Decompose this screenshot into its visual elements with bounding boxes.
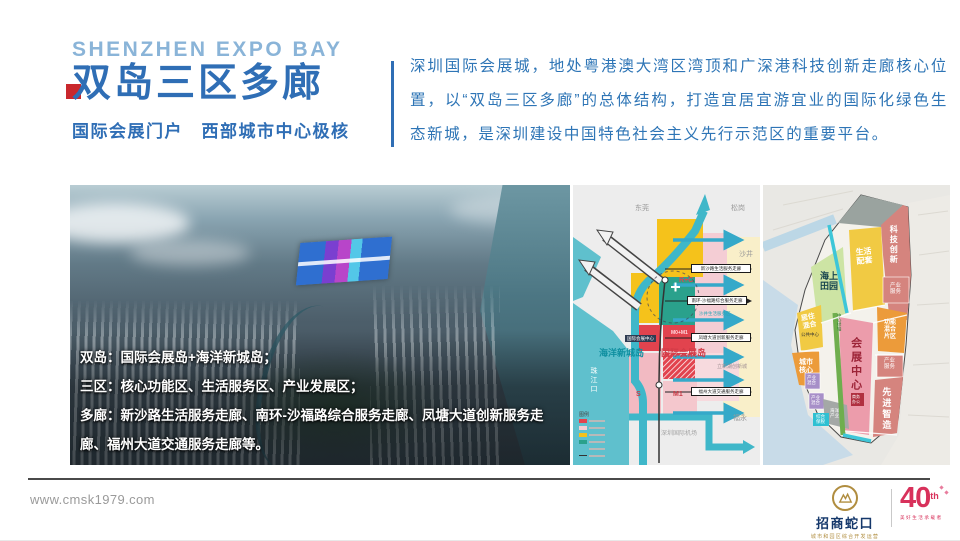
website-url: www.cmsk1979.com [30, 492, 155, 507]
region-label-shajing: 沙井 [739, 251, 753, 259]
zone-label-expo-center: 会展中心 [849, 337, 862, 393]
caption-line-islands: 双岛：国际会展岛+海洋新城岛； [80, 343, 560, 372]
zone-label-industry-service-2: 产业服务 [884, 358, 896, 371]
region-label-dongguan: 东莞 [635, 205, 649, 213]
caption-text: 国际会展岛+海洋新城岛； [121, 350, 277, 365]
zone-label-sea-garden: 海上田园 [820, 271, 840, 292]
zone-label-industry-mixed-1: 产业混合 [807, 375, 818, 385]
content-row: 双岛：国际会展岛+海洋新城岛； 三区：核心功能区、生活服务区、产业发展区； 多廊… [70, 185, 950, 465]
legend-row [579, 418, 605, 425]
zone-label-public-center: 公共中心 [801, 332, 819, 337]
sparkle-icon [944, 490, 948, 494]
island-label-ocean-new-city: 海洋新城岛 [599, 348, 644, 358]
zone-label-living: 生活配套 [855, 246, 877, 266]
zone-code-m0m1: M0+M1 [671, 331, 688, 337]
caption-text: 核心功能区、生活服务区、产业发展区； [121, 379, 364, 394]
zoning-map: 科技创新 生活配套 海上田园 居住混合 城市核心 产业服务 功能混合片区 产业服… [763, 185, 950, 465]
corridor-label-4: 福州大道交通服务走廊 [691, 387, 751, 396]
brand-tagline: 城市和园区综合开发运营 [806, 533, 884, 540]
zone-label-green-axis: 中心绿轴 [837, 313, 842, 331]
zone-code-m1: M1 [673, 391, 683, 399]
region-label-songgang: 松岗 [731, 205, 745, 213]
legend-title: 图例 [579, 411, 605, 418]
schematic-map: 东莞 松岗 沙井 福永 珠江口 海洋新城岛 国际会展岛 国际会展中心 深圳国际机… [573, 185, 760, 465]
title-english: SHENZHEN EXPO BAY [72, 38, 387, 62]
logo-divider [891, 489, 892, 527]
water-label-pearl-river: 珠江口 [589, 367, 597, 394]
zone-label-industry-service-1: 产业服务 [890, 283, 902, 296]
zone-code-rc: R+C [679, 277, 693, 285]
title-block: SHENZHEN EXPO BAY 双岛三区多廊 国际会展门户 西部城市中心极核 [72, 38, 387, 142]
legend-row [579, 439, 605, 446]
anniversary-logo: 40th 美好生活承载者 [900, 484, 955, 521]
vertical-divider [391, 61, 394, 147]
brand-name: 招商蛇口 [806, 513, 884, 532]
corridor-label-3: 凤塘大道创新服务走廊 [691, 333, 751, 342]
caption-label: 三区： [80, 379, 121, 394]
zone-label-business-office: 商务办公 [852, 395, 861, 404]
caption-label: 双岛： [80, 350, 121, 365]
service-area-label: 沙井生活服务区 [699, 311, 731, 316]
zone-label-bonded: 综合保税 [816, 414, 827, 424]
photo-caption: 双岛：国际会展岛+海洋新城岛； 三区：核心功能区、生活服务区、产业发展区； 多廊… [70, 343, 570, 459]
expo-center-tag: 国际会展中心 [625, 335, 656, 342]
legend-row [579, 432, 605, 439]
zone-code-s: S [636, 391, 641, 399]
corridor-label-2: 南环-沙福路综合服务走廊 [687, 296, 747, 305]
cmsk-logo: 招商蛇口 城市和园区综合开发运营 [806, 485, 884, 540]
zone-label-tech: 科技创新 [889, 225, 898, 265]
island-label-expo-island: 国际会展岛 [661, 348, 706, 358]
footer-divider [28, 478, 930, 480]
map-legend: 图例 [579, 411, 605, 460]
mountain-icon [832, 485, 858, 511]
corridor-label-1: 新沙路生活服务走廊 [691, 264, 751, 273]
slide: SHENZHEN EXPO BAY 双岛三区多廊 国际会展门户 西部城市中心极核… [0, 0, 960, 541]
region-label-fuyong: 福永 [733, 415, 747, 423]
intro-paragraph: 深圳国际会展城，地处粤港澳大湾区湾顶和广深港科技创新走廊核心位置，以“双岛三区多… [410, 50, 948, 152]
caption-line-districts: 三区：核心功能区、生活服务区、产业发展区； [80, 372, 560, 401]
zone-label-industry-mixed-2: 产业混合 [811, 395, 822, 405]
zone-label-residential: 居住混合 [800, 313, 818, 332]
page-title: 双岛三区多廊 [72, 63, 387, 105]
anniversary-suffix: th [930, 491, 939, 501]
caption-text: 新沙路生活服务走廊、南环-沙福路综合服务走廊、凤塘大道创新服务走廊、福州大道交通… [80, 408, 544, 452]
district-label-lixinhu: 立新湖创新城 [717, 365, 747, 371]
zone-label-advanced-mfg: 先进智造 [881, 387, 891, 431]
zone-label-mixed-function: 功能混合片区 [884, 320, 898, 341]
zone-label-city-core: 城市核心 [799, 359, 814, 375]
caption-label: 多廊： [80, 408, 121, 423]
legend-row [579, 425, 605, 432]
aerial-photo: 双岛：国际会展岛+海洋新城岛； 三区：核心功能区、生活服务区、产业发展区； 多廊… [70, 185, 570, 465]
airport-label: 深圳国际机场 [661, 431, 697, 438]
legend-row [579, 453, 605, 460]
anniversary-tagline: 美好生活承载者 [900, 515, 955, 521]
caption-line-corridors: 多廊：新沙路生活服务走廊、南环-沙福路综合服务走廊、凤塘大道创新服务走廊、福州大… [80, 401, 560, 459]
zone-label-marine-industry: 海洋产业 [830, 408, 841, 418]
subtitle: 国际会展门户 西部城市中心极核 [72, 117, 387, 142]
legend-row [579, 446, 605, 453]
anniversary-number: 40 [900, 482, 930, 514]
sparkle-icon [939, 485, 943, 489]
zoning-map-graphic [763, 185, 950, 465]
